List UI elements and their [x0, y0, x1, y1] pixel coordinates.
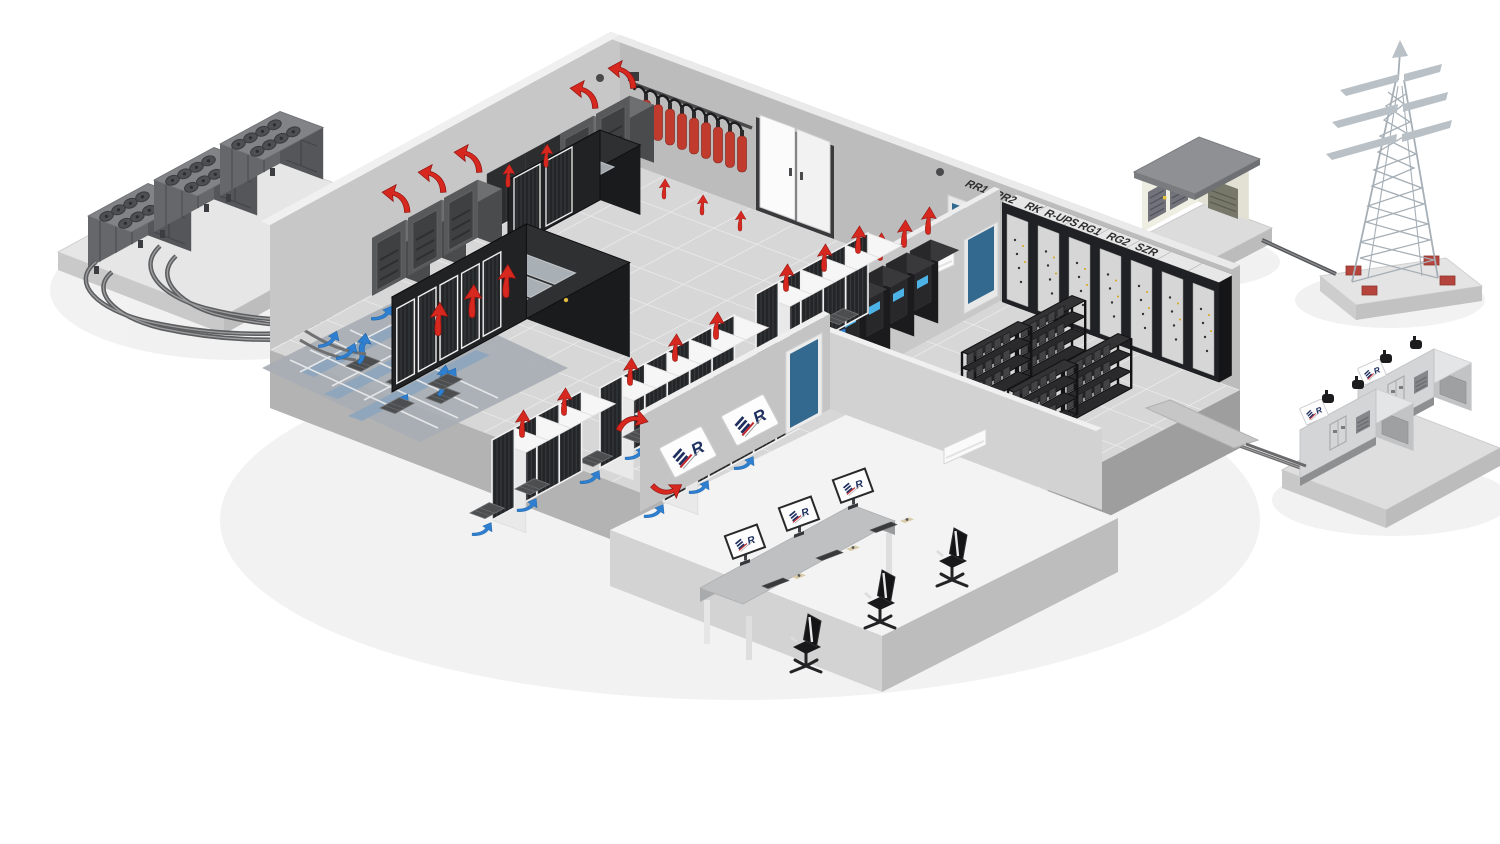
- datacenter-isometric-illustration: R: [0, 0, 1500, 844]
- scene-canvas: R: [0, 0, 1500, 844]
- transmission-tower: [1320, 40, 1482, 320]
- tower-crossarms: [1326, 40, 1452, 160]
